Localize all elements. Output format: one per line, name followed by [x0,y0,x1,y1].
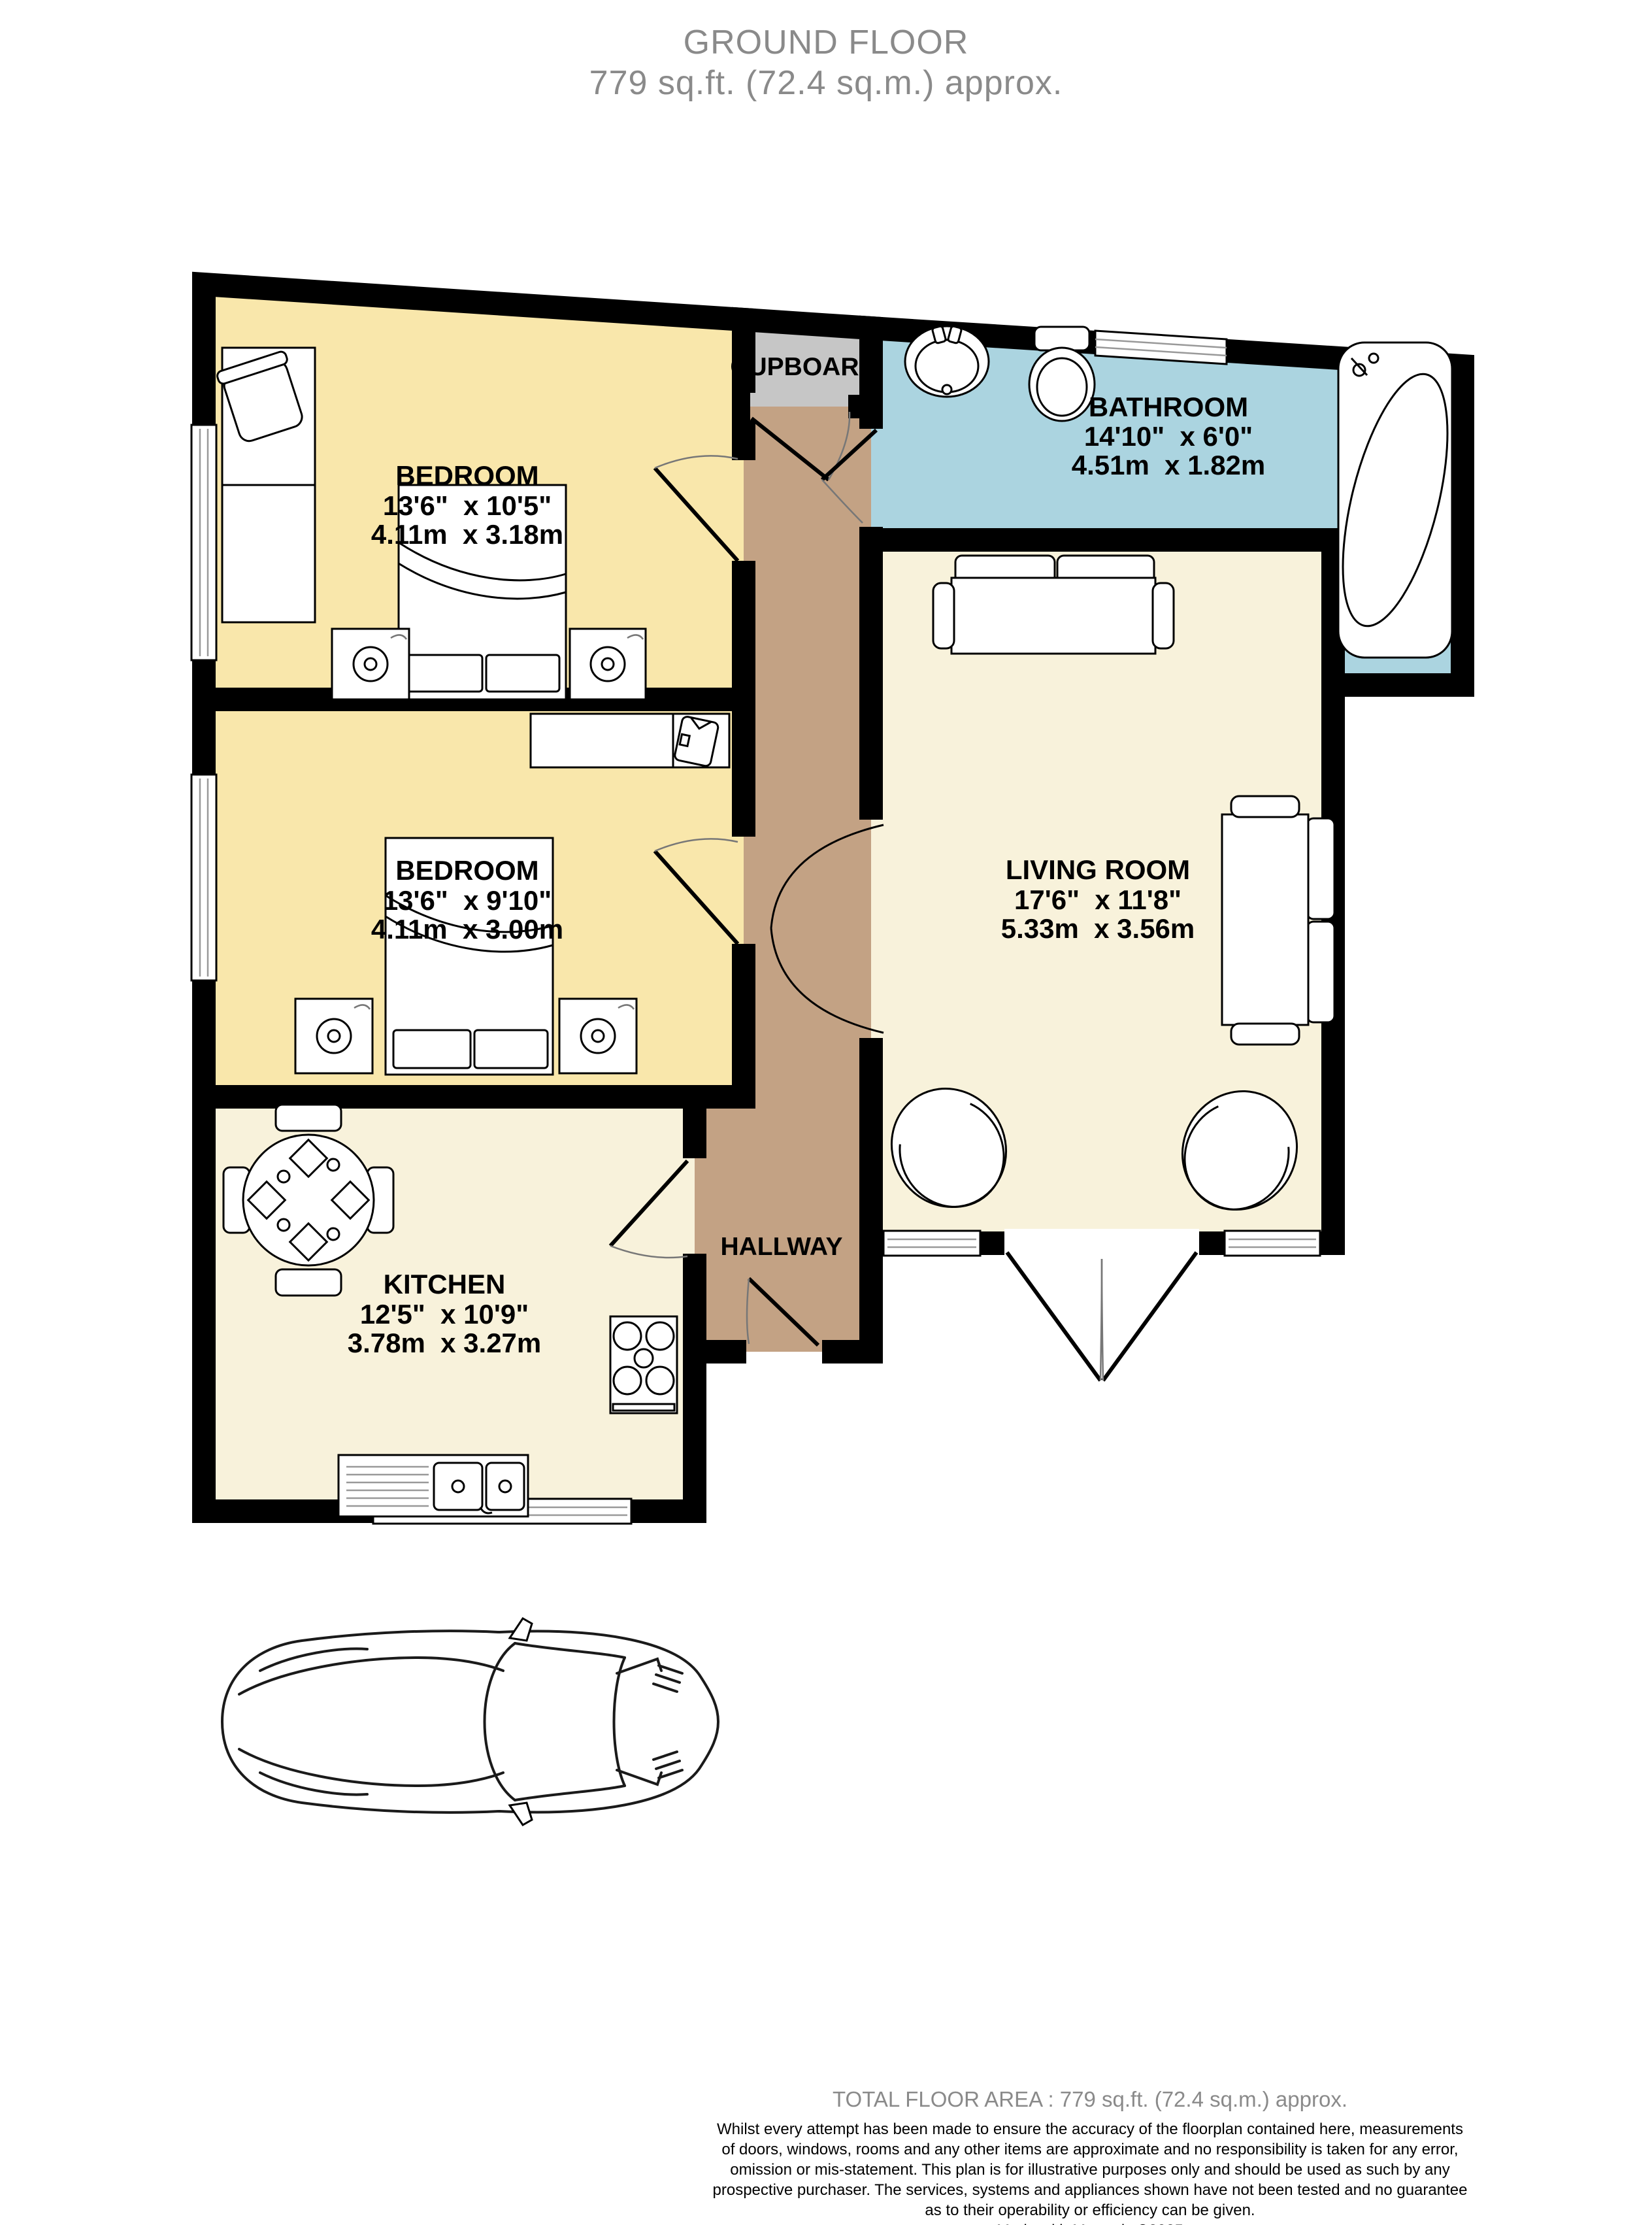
bedroom2-door-gap [730,837,744,944]
washbasin-icon [905,326,989,397]
disclaimer-line: of doors, windows, rooms and any other i… [493,2139,1652,2160]
bathroom-dims-metric: 4.51m x 1.82m [1072,450,1266,480]
hob-icon [610,1316,677,1413]
footer: TOTAL FLOOR AREA : 779 sq.ft. (72.4 sq.m… [493,2086,1652,2225]
kitchen-label: KITCHEN [384,1269,506,1299]
living-room-dims-metric: 5.33m x 3.56m [1001,913,1195,944]
speaker-icon [570,629,646,699]
disclaimer-line: prospective purchaser. The services, sys… [493,2180,1652,2200]
disclaimer: Whilst every attempt has been made to en… [493,2119,1652,2220]
cupboard-door-gap [750,407,848,420]
window-icon [191,775,216,980]
kitchen-sink-icon [339,1455,528,1516]
living-room-label: LIVING ROOM [1006,854,1190,885]
speaker-icon [332,629,409,699]
window-icon [884,1231,980,1256]
window-icon [1225,1231,1320,1256]
sofa-icon [933,556,1174,654]
cupboard-door-gap [750,393,848,407]
kitchen-dims-metric: 3.78m x 3.27m [348,1328,542,1358]
metropix-credit: Made with Metropix ©2025 [493,2220,1652,2225]
kitchen-door-gap [695,1158,708,1254]
bedroom2-door-gap [744,837,757,944]
speaker-icon [295,999,372,1073]
bedroom1-dims-imperial: 13'6" x 10'5" [383,490,552,521]
living-room-dims-imperial: 17'6" x 11'8" [1014,884,1181,915]
dining-chair-icon [276,1105,341,1131]
car-icon [222,1618,718,1825]
disclaimer-line: Whilst every attempt has been made to en… [493,2119,1652,2139]
cupboard-label: CUPBOARD [730,353,877,381]
bedroom1-door-gap [744,460,757,561]
bathroom-label: BATHROOM [1089,392,1248,422]
window-icon [191,425,216,660]
french-doors-icon [1007,1252,1197,1380]
bathroom-dims-imperial: 14'10" x 6'0" [1084,421,1253,452]
dining-chair-icon [276,1269,341,1296]
floorplan-svg: BEDROOM 13'6" x 10'5" 4.11m x 3.18m BEDR… [0,0,1652,2225]
toilet-icon [1029,327,1095,421]
bathroom-door-gap [871,429,885,527]
bedroom2-dims-metric: 4.11m x 3.00m [371,914,563,945]
total-floor-area: TOTAL FLOOR AREA : 779 sq.ft. (72.4 sq.m… [493,2086,1652,2113]
living-doorway-gap [871,820,885,1038]
bedroom2-label: BEDROOM [395,855,538,886]
disclaimer-line: omission or mis-statement. This plan is … [493,2160,1652,2180]
living-doorway-gap [857,820,871,1038]
floorplan-page: GROUND FLOOR 779 sq.ft. (72.4 sq.m.) app… [0,0,1652,2225]
kitchen-door-gap [681,1158,695,1254]
bedroom1-dims-metric: 4.11m x 3.18m [371,519,563,550]
disclaimer-line: as to their operability or efficiency ca… [493,2200,1652,2220]
hallway-label: HALLWAY [720,1233,842,1261]
front-door-gap [746,1352,822,1365]
speaker-icon [559,999,636,1073]
corner-bath-icon [1322,343,1468,658]
wardrobe-shirt-icon [531,714,729,767]
bedroom1-label: BEDROOM [395,460,538,491]
bedroom1-door-gap [730,460,744,561]
french-door-gap [1004,1229,1199,1258]
bedroom2-dims-imperial: 13'6" x 9'10" [383,885,552,916]
kitchen-dims-imperial: 12'5" x 10'9" [360,1299,529,1330]
